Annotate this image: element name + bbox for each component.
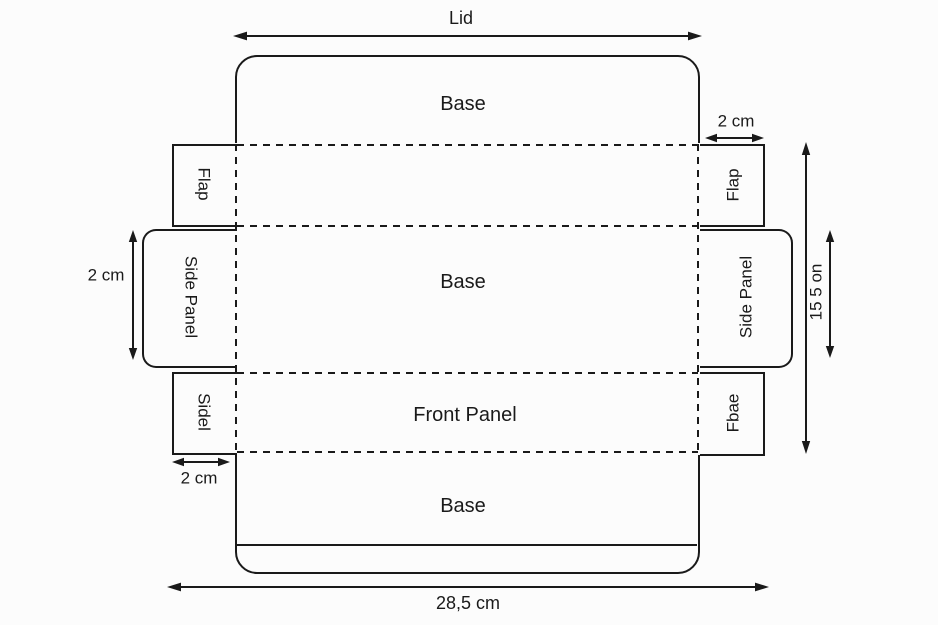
fold-line-right	[697, 144, 699, 453]
box-template-diagram: Base Base Front Panel Base Flap Side Pan…	[0, 0, 938, 625]
side-panel-right-label: Side Panel	[738, 256, 755, 338]
side-panel-left-label: Side Panel	[183, 256, 200, 338]
full-height-arrow-right	[799, 142, 813, 454]
fold-line-left	[235, 144, 237, 453]
base-top-label: Base	[440, 94, 486, 114]
total-width-arrow-bottom	[167, 580, 769, 594]
dim-total-width: 28,5 cm	[436, 594, 500, 612]
base-middle-label: Base	[440, 272, 486, 292]
flap-left-label: Flap	[196, 167, 213, 200]
dim-2cm-bottom-left: 2 cm	[181, 470, 218, 487]
dim-2cm-left: 2 cm	[88, 267, 125, 284]
lid-width-arrow	[233, 29, 702, 43]
lid-label: Lid	[449, 9, 473, 27]
flap-right-label: Flap	[725, 168, 742, 201]
tab-width-arrow-bottom-left	[172, 455, 230, 469]
fold-line-upper	[237, 225, 698, 227]
fold-line-top	[237, 144, 698, 146]
dim-2cm-top-right: 2 cm	[718, 113, 755, 130]
panel-height-arrow-right	[823, 230, 837, 358]
fold-line-bottom	[237, 451, 698, 453]
side-tab-bottom-left-label: Sidel	[196, 393, 213, 431]
side-tab-bottom-right-label: Fbae	[725, 394, 742, 433]
side-panel-depth-arrow-left	[126, 230, 140, 360]
glue-strip-line	[237, 544, 697, 546]
front-panel-label: Front Panel	[413, 405, 516, 425]
base-bottom-label: Base	[440, 496, 486, 516]
fold-line-lower	[237, 372, 698, 374]
tab-width-arrow-top-right	[705, 131, 764, 145]
